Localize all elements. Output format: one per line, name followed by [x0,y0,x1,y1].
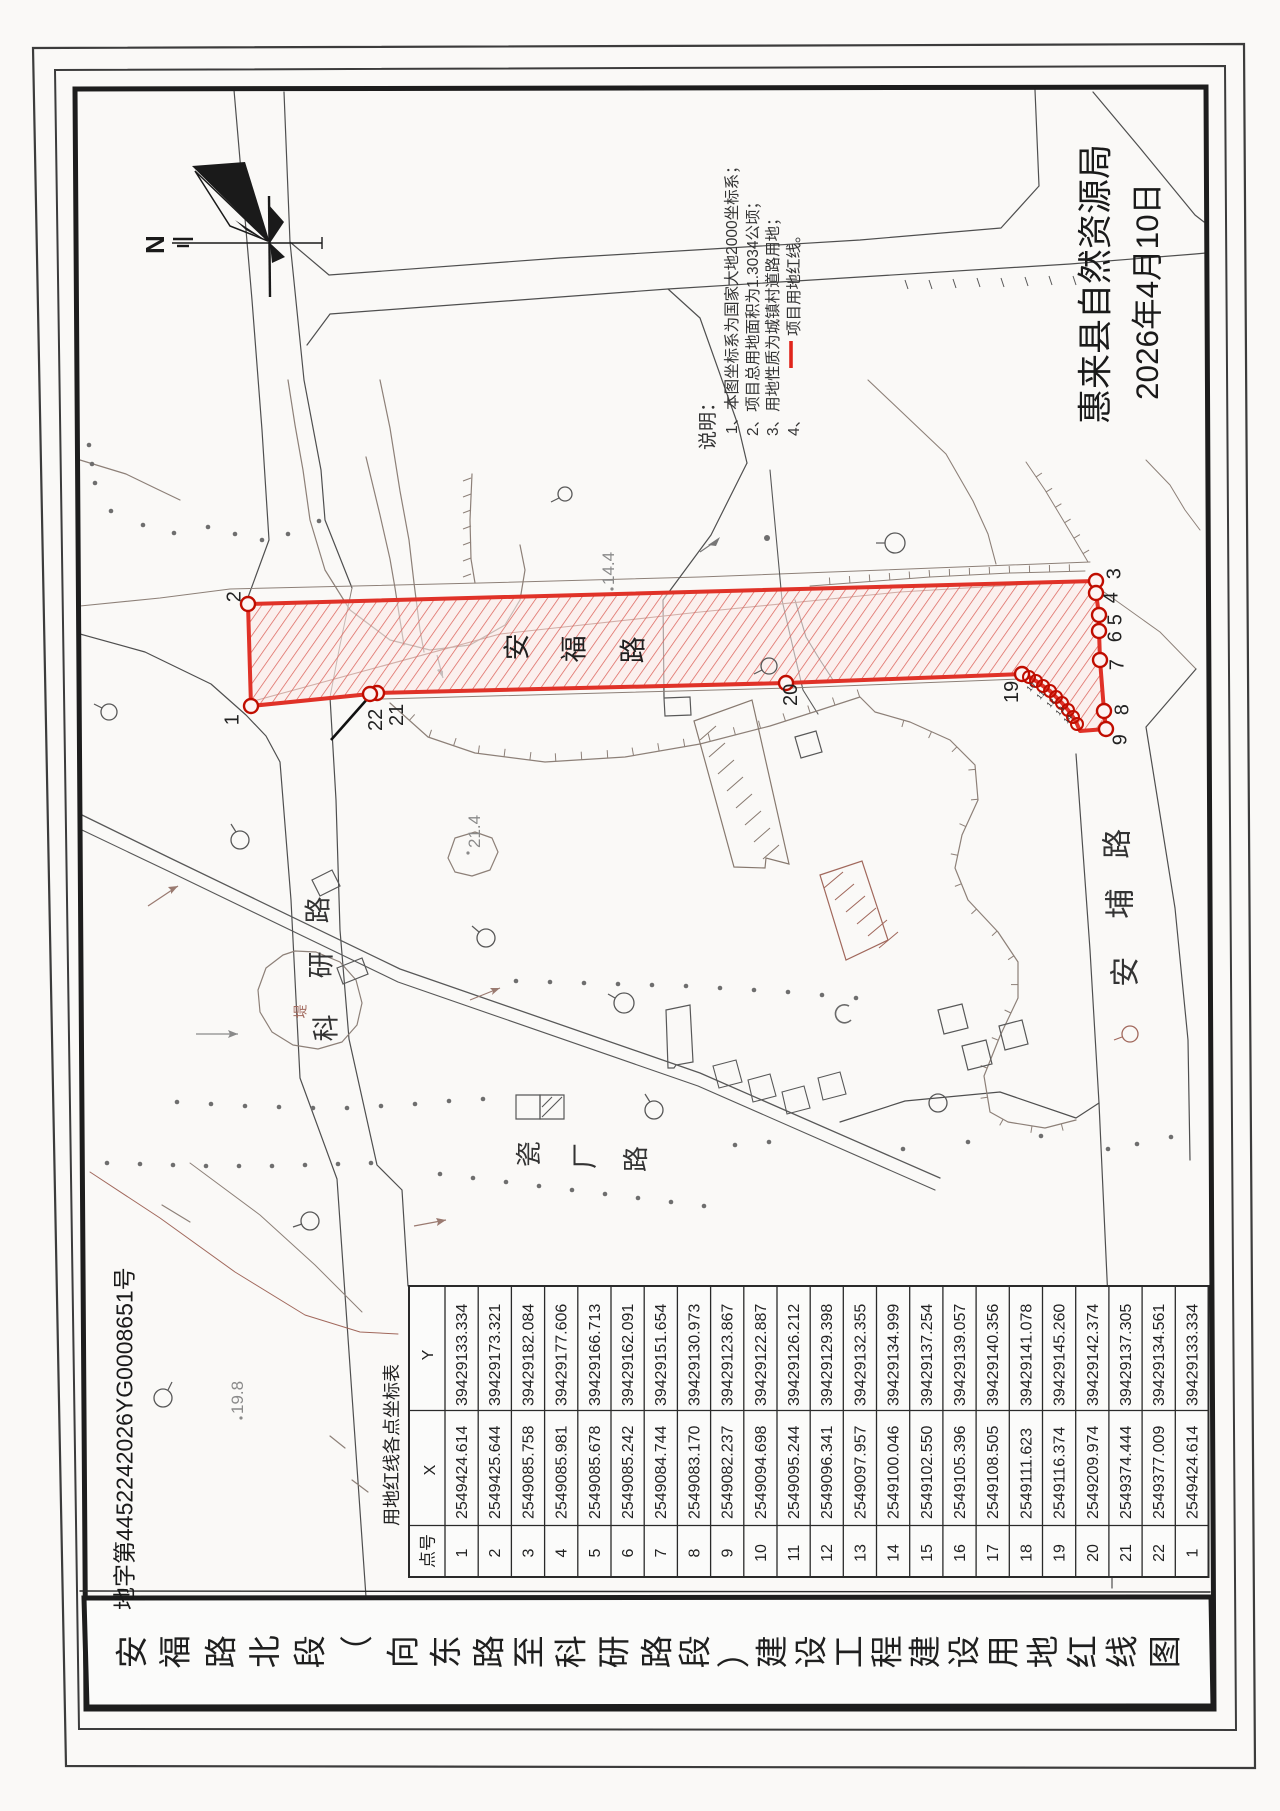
svg-text:2026年4月10日: 2026年4月10日 [1122,183,1168,400]
svg-text:39429139.057: 39429139.057 [952,1304,969,1406]
svg-text:22: 22 [365,709,387,731]
svg-text:研: 研 [299,951,338,978]
svg-text:2549094.698: 2549094.698 [753,1425,770,1519]
svg-text:安: 安 [1100,957,1144,987]
svg-text:39429134.561: 39429134.561 [1151,1304,1168,1406]
svg-text:至: 至 [503,1635,551,1668]
svg-text:2549424.614: 2549424.614 [454,1425,471,1519]
svg-text:2549424.614: 2549424.614 [1184,1425,1201,1519]
svg-text:21: 21 [1118,1544,1135,1562]
svg-text:39429145.260: 39429145.260 [1052,1304,1069,1406]
svg-text:2549108.505: 2549108.505 [985,1425,1002,1519]
svg-text:福: 福 [149,1635,197,1668]
svg-text:2、项目总用地面积为1.3034公顷；: 2、项目总用地面积为1.3034公顷； [741,194,763,436]
svg-text:2549116.374: 2549116.374 [1052,1427,1069,1519]
svg-text:1: 1 [216,714,245,725]
svg-text:5: 5 [1099,614,1128,625]
svg-text:20: 20 [780,684,802,706]
svg-text:13: 13 [852,1544,869,1562]
svg-text:39429142.374: 39429142.374 [1085,1304,1102,1406]
svg-text:2549085.981: 2549085.981 [554,1425,571,1519]
svg-text:路: 路 [296,896,335,923]
svg-text:点号: 点号 [414,1534,439,1568]
svg-text:19: 19 [1001,681,1023,703]
svg-text:39429123.867: 39429123.867 [720,1304,737,1406]
svg-text:图: 图 [1139,1635,1187,1668]
svg-text:路: 路 [195,1635,243,1668]
svg-text:地字第4452242026YG0008651号: 地字第4452242026YG0008651号 [106,1267,140,1610]
svg-text:路: 路 [1092,829,1136,859]
svg-text:21.4: 21.4 [465,815,484,848]
svg-text:3、用地性质为城镇村道路用地；: 3、用地性质为城镇村道路用地； [761,210,783,436]
svg-text:39429132.355: 39429132.355 [852,1304,869,1406]
svg-text:39429137.305: 39429137.305 [1118,1304,1135,1406]
svg-text:2549097.957: 2549097.957 [852,1425,869,1519]
svg-text:科: 科 [304,1014,343,1041]
svg-text:39429166.713: 39429166.713 [587,1304,604,1406]
svg-text:项目用地红线。: 项目用地红线。 [782,227,804,336]
svg-text:12: 12 [819,1544,836,1562]
svg-text:X: X [422,1464,439,1475]
svg-text:1: 1 [454,1548,471,1557]
svg-text:2549105.396: 2549105.396 [952,1425,969,1519]
svg-text:路: 路 [611,636,650,663]
svg-text:用地红线各点坐标表: 用地红线各点坐标表 [378,1364,404,1526]
svg-text:2549111.623: 2549111.623 [1018,1428,1035,1519]
svg-text:22: 22 [1151,1544,1168,1562]
svg-text:39429129.398: 39429129.398 [819,1304,836,1406]
svg-text:2549084.744: 2549084.744 [653,1425,670,1519]
svg-text:19: 19 [1052,1544,1069,1562]
svg-text:39429141.078: 39429141.078 [1018,1304,1035,1406]
svg-text:路: 路 [616,1146,653,1172]
svg-text:瓷: 瓷 [509,1141,546,1167]
svg-text:2549095.244: 2549095.244 [786,1425,803,1519]
svg-text:2549083.170: 2549083.170 [686,1425,703,1519]
svg-text:39429173.321: 39429173.321 [487,1304,504,1406]
svg-text:8: 8 [686,1548,703,1557]
svg-text:科: 科 [545,1635,593,1668]
svg-text:3: 3 [1098,568,1127,579]
svg-text:39429126.212: 39429126.212 [786,1304,803,1406]
svg-text:段: 段 [284,1635,332,1668]
svg-text:Y: Y [420,1349,437,1360]
svg-text:39429182.084: 39429182.084 [520,1304,537,1406]
svg-text:4: 4 [554,1548,571,1557]
svg-text:16: 16 [952,1544,969,1562]
svg-text:2549209.974: 2549209.974 [1085,1425,1102,1519]
svg-text:6: 6 [620,1548,637,1557]
svg-text:东: 东 [420,1635,468,1668]
svg-text:14.4: 14.4 [599,552,618,585]
svg-text:39429122.887: 39429122.887 [753,1304,770,1406]
svg-text:39429133.334: 39429133.334 [1184,1304,1201,1406]
svg-text:14: 14 [886,1544,903,1562]
svg-text:7: 7 [653,1548,670,1557]
svg-text:15: 15 [919,1544,936,1562]
svg-text:39429130.973: 39429130.973 [686,1304,703,1406]
svg-text:19.8: 19.8 [228,1381,247,1414]
svg-text:5: 5 [587,1548,604,1557]
svg-text:4: 4 [1095,592,1124,603]
svg-text:21: 21 [386,704,408,726]
svg-text:7: 7 [1101,659,1130,670]
svg-text:39429162.091: 39429162.091 [620,1304,637,1406]
svg-text:安: 安 [495,633,534,660]
svg-text:2549096.341: 2549096.341 [819,1425,836,1519]
svg-text:线: 线 [1096,1635,1144,1668]
svg-text:1、本图坐标系为国家大地2000坐标系；: 1、本图坐标系为国家大地2000坐标系； [720,158,742,434]
svg-text:2549100.046: 2549100.046 [886,1425,903,1519]
svg-text:2549425.644: 2549425.644 [487,1425,504,1519]
svg-text:向: 向 [377,1635,425,1668]
svg-text:（: （ [331,1635,379,1668]
svg-text:福: 福 [552,635,591,662]
svg-text:2549085.758: 2549085.758 [520,1425,537,1519]
svg-text:39429140.356: 39429140.356 [985,1304,1002,1406]
svg-text:39429133.334: 39429133.334 [454,1304,471,1406]
svg-text:2549082.237: 2549082.237 [720,1425,737,1519]
svg-text:2549377.009: 2549377.009 [1151,1425,1168,1519]
svg-text:说明：: 说明： [693,393,720,450]
svg-text:8: 8 [1106,704,1135,715]
svg-text:11: 11 [786,1545,803,1562]
svg-text:惠来县自然资源局: 惠来县自然资源局 [1067,144,1118,424]
svg-text:6: 6 [1099,631,1128,642]
svg-text:17: 17 [985,1544,1002,1562]
svg-text:研: 研 [588,1635,636,1668]
svg-text:39429134.999: 39429134.999 [886,1304,903,1406]
svg-text:9: 9 [1104,734,1133,745]
svg-text:39429137.254: 39429137.254 [919,1304,936,1406]
svg-text:2549374.444: 2549374.444 [1118,1425,1135,1519]
svg-text:2549085.678: 2549085.678 [587,1425,604,1519]
svg-text:9: 9 [720,1548,737,1557]
svg-text:2549102.550: 2549102.550 [919,1425,936,1519]
svg-text:2549085.242: 2549085.242 [620,1425,637,1519]
svg-text:39429177.606: 39429177.606 [554,1304,571,1406]
svg-text:4、: 4、 [782,412,804,436]
svg-text:北: 北 [239,1635,287,1668]
svg-text:安: 安 [106,1635,154,1668]
svg-text:厂: 厂 [565,1143,602,1169]
svg-text:39429151.654: 39429151.654 [653,1304,670,1406]
svg-text:埔: 埔 [1095,889,1139,919]
svg-text:10: 10 [753,1544,770,1562]
svg-text:3: 3 [520,1548,537,1557]
svg-text:2: 2 [487,1548,504,1557]
svg-text:18: 18 [1018,1544,1035,1562]
svg-text:1: 1 [1184,1548,1201,1557]
svg-text:2: 2 [218,591,247,602]
svg-text:N: N [140,235,170,254]
svg-text:20: 20 [1085,1544,1102,1562]
